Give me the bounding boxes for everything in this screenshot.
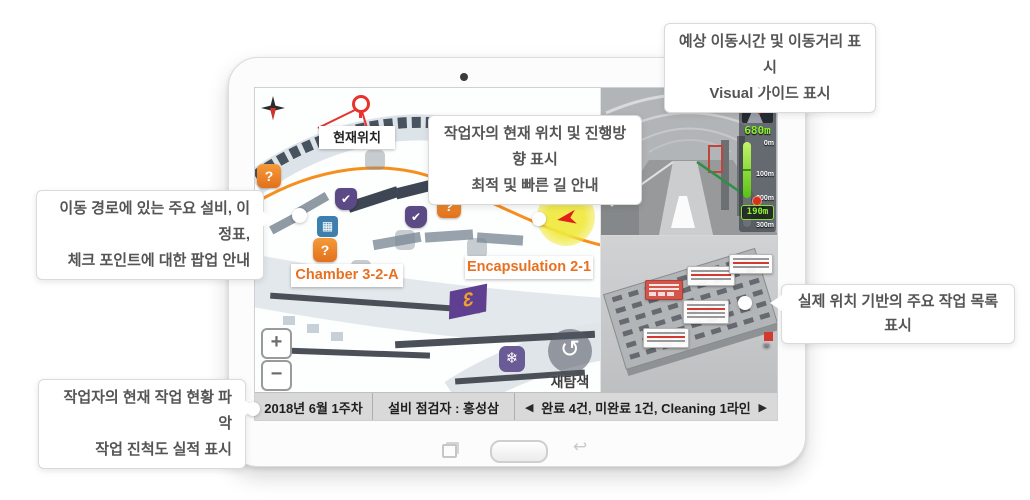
current-location-pin-icon — [352, 95, 370, 113]
zoom-in-button[interactable]: + — [261, 328, 292, 359]
checkpoint-shield-icon[interactable]: ✔ — [405, 206, 427, 228]
status-bar: 2018년 6월 1주차 설비 점검자 : 홍성삼 ◀ 완료 4건, 미완료 1… — [255, 392, 777, 420]
status-summary-segment: ◀ 완료 4건, 미완료 1건, Cleaning 1라인 ▶ — [515, 393, 777, 420]
next-button[interactable]: ▶ — [759, 401, 767, 414]
gauge-divider — [743, 169, 751, 171]
callout-dot — [738, 296, 752, 310]
ghost-marker-icon — [395, 230, 415, 250]
status-summary: 완료 4건, 미완료 1건, Cleaning 1라인 — [541, 398, 751, 417]
callout-line: Visual 가이드 표시 — [678, 81, 862, 107]
zoom-out-button[interactable]: − — [261, 360, 292, 391]
popup-question-marker[interactable]: ? — [257, 164, 281, 188]
current-location-label: 현재위치 — [319, 126, 395, 149]
callout-top-right: 예상 이동시간 및 이동거리 표시 Visual 가이드 표시 — [664, 23, 876, 113]
work-popup[interactable] — [683, 300, 729, 324]
callout-pointer — [770, 295, 782, 311]
ghost-marker-icon — [467, 238, 487, 258]
callout-line: 작업자의 현재 위치 및 진행방향 표시 — [442, 121, 628, 173]
front-camera-icon — [460, 73, 468, 81]
prev-button[interactable]: ◀ — [525, 401, 533, 414]
recent-apps-button[interactable] — [442, 444, 457, 458]
tick-100m: 100m — [756, 171, 774, 178]
ghost-marker-icon — [365, 150, 385, 170]
callout-dot — [292, 208, 307, 223]
remaining-distance: 190m — [741, 205, 774, 220]
chamber-label: Chamber 3-2-A — [291, 264, 403, 287]
callout-line: 최적 및 빠른 길 안내 — [442, 173, 628, 199]
callout-line: 작업 진척도 실적 표시 — [52, 437, 232, 463]
work-popup[interactable] — [687, 266, 735, 286]
home-button[interactable] — [490, 440, 548, 463]
checkpoint-shield-icon[interactable]: ✔ — [335, 188, 357, 210]
tick-300m: 300m — [756, 222, 774, 229]
callout-dot — [532, 212, 546, 226]
heading-arrow-icon — [556, 210, 577, 227]
zone-number-text: 3 — [462, 286, 473, 315]
back-button[interactable]: ↪ — [573, 437, 587, 457]
compass-icon — [261, 96, 285, 120]
status-date: 2018년 6월 1주차 — [255, 393, 373, 420]
callout-line: 체크 포인트에 대한 팝업 안내 — [50, 248, 250, 274]
callout-bottom-left: 작업자의 현재 작업 현황 파악 작업 진척도 실적 표시 — [38, 379, 246, 469]
research-label: 재탐색 — [541, 372, 599, 392]
callout-line: 예상 이동시간 및 이동거리 표시 — [678, 29, 862, 81]
progress-gauge: 0m 100m 200m 300m 190m — [739, 139, 776, 231]
callout-pointer — [752, 78, 770, 90]
callout-line: 실제 위치 기반의 주요 작업 목록 표시 — [795, 290, 1001, 338]
work-popup-highlighted[interactable] — [645, 280, 683, 300]
encapsulation-label: Encapsulation 2-1 — [465, 256, 593, 279]
callout-pointer — [244, 400, 256, 416]
total-distance: 680m — [739, 124, 776, 137]
callout-left: 이동 경로에 있는 주요 설비, 이정표, 체크 포인트에 대한 팝업 안내 — [36, 190, 264, 280]
work-popup[interactable] — [729, 254, 773, 274]
callout-line: 작업자의 현재 작업 현황 파악 — [52, 385, 232, 437]
tick-0m: 0m — [764, 140, 774, 147]
status-inspector: 설비 점검자 : 홍성삼 — [373, 393, 515, 420]
callout-pointer — [262, 211, 274, 227]
callout-right: 실제 위치 기반의 주요 작업 목록 표시 — [781, 284, 1015, 344]
equipment-marker-icon[interactable]: ▦ — [317, 216, 338, 237]
callout-line: 이동 경로에 있는 주요 설비, 이정표, — [50, 196, 250, 248]
research-button[interactable]: ↺ — [548, 329, 592, 373]
popup-question-marker[interactable]: ? — [313, 238, 337, 262]
work-popup[interactable] — [643, 328, 689, 348]
freeze-zone-icon: ❄ — [499, 346, 525, 372]
fab-overview-panel — [600, 235, 777, 393]
callout-center: 작업자의 현재 위치 및 진행방향 표시 최적 및 빠른 길 안내 — [428, 115, 642, 205]
page: ↪ — [0, 0, 1030, 500]
work-list-scroller[interactable] — [764, 332, 773, 382]
